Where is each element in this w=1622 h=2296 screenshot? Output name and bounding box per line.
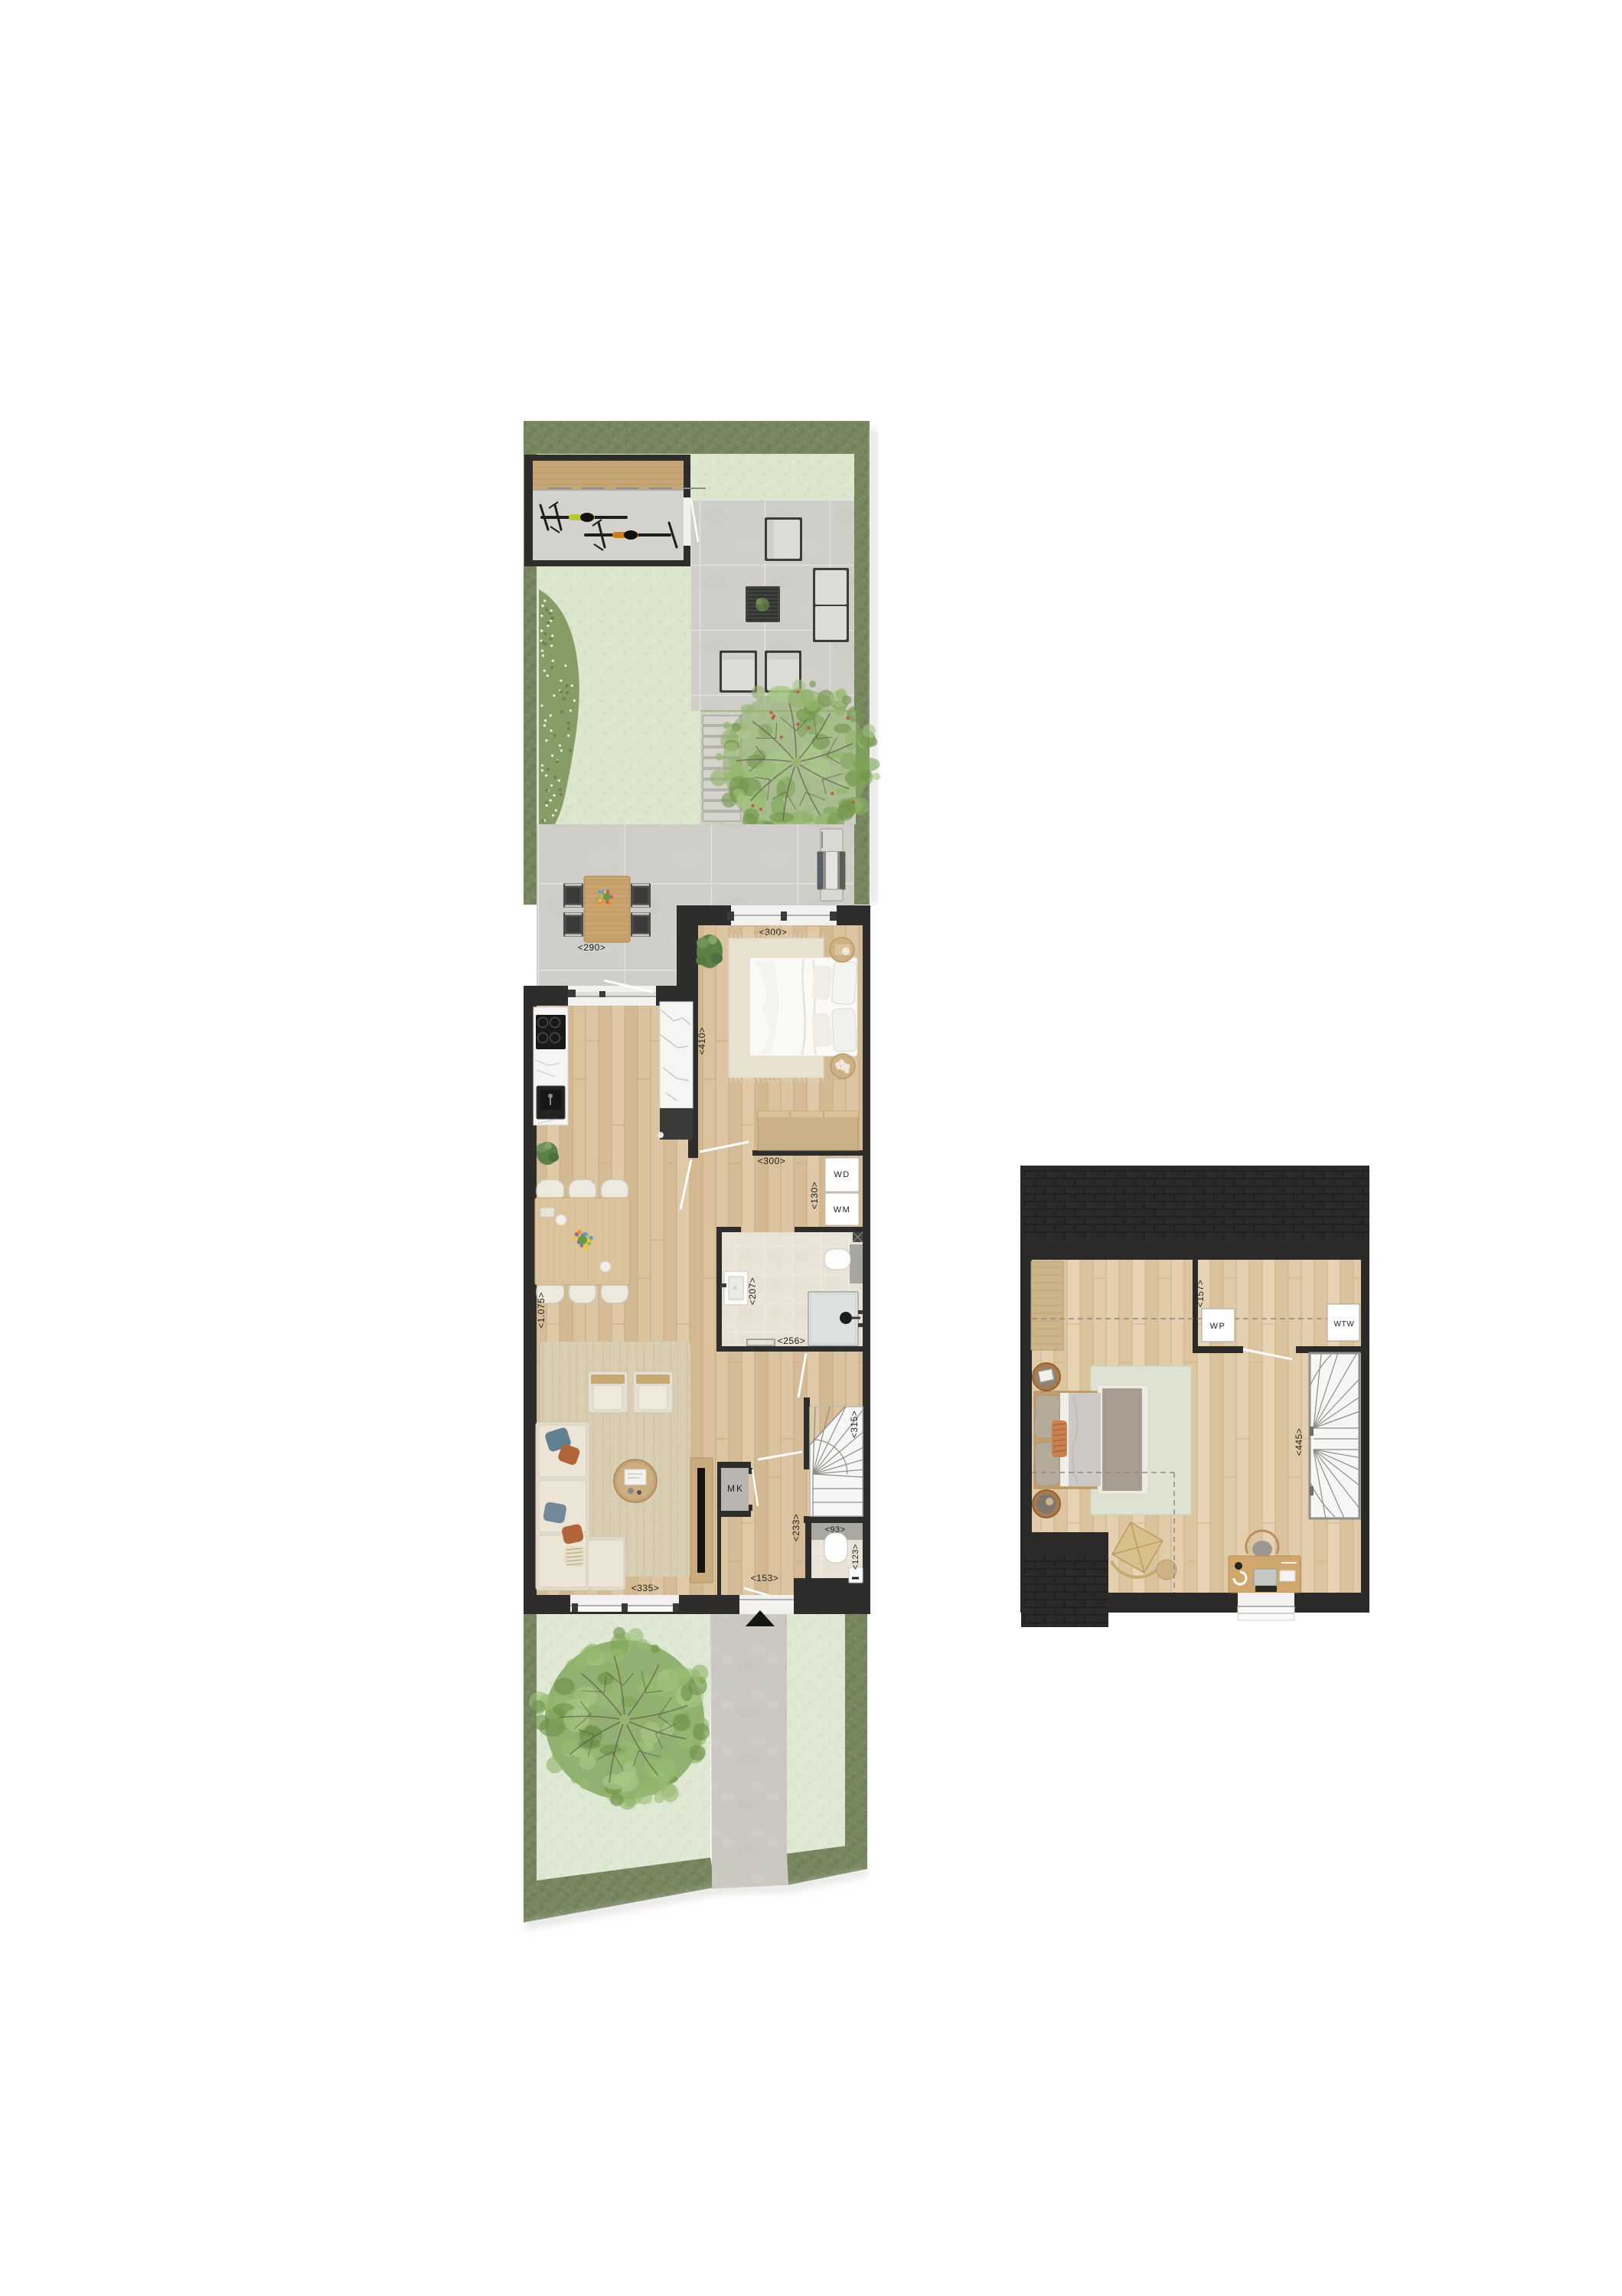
- svg-text:<335>: <335>: [632, 1583, 660, 1593]
- svg-text:<153>: <153>: [751, 1573, 779, 1583]
- svg-text:<410>: <410>: [697, 1027, 707, 1055]
- svg-text:WTW: WTW: [1334, 1320, 1355, 1329]
- svg-text:<130>: <130>: [809, 1182, 820, 1210]
- svg-text:<157>: <157>: [1195, 1280, 1206, 1308]
- svg-text:<315>: <315>: [849, 1411, 860, 1439]
- svg-text:<207>: <207>: [747, 1277, 758, 1306]
- svg-text:WP: WP: [1210, 1322, 1226, 1331]
- svg-text:MK: MK: [727, 1483, 744, 1494]
- svg-text:<233>: <233>: [791, 1514, 801, 1542]
- svg-text:<123>: <123>: [851, 1544, 860, 1570]
- svg-text:<256>: <256>: [778, 1336, 806, 1346]
- svg-text:<93>: <93>: [824, 1525, 845, 1534]
- svg-text:<300>: <300>: [758, 1156, 786, 1166]
- svg-text:<445>: <445>: [1294, 1428, 1304, 1456]
- svg-text:<290>: <290>: [578, 942, 606, 953]
- svg-text:<1.075>: <1.075>: [536, 1292, 547, 1329]
- svg-text:WD: WD: [834, 1170, 850, 1179]
- svg-text:WM: WM: [834, 1205, 851, 1215]
